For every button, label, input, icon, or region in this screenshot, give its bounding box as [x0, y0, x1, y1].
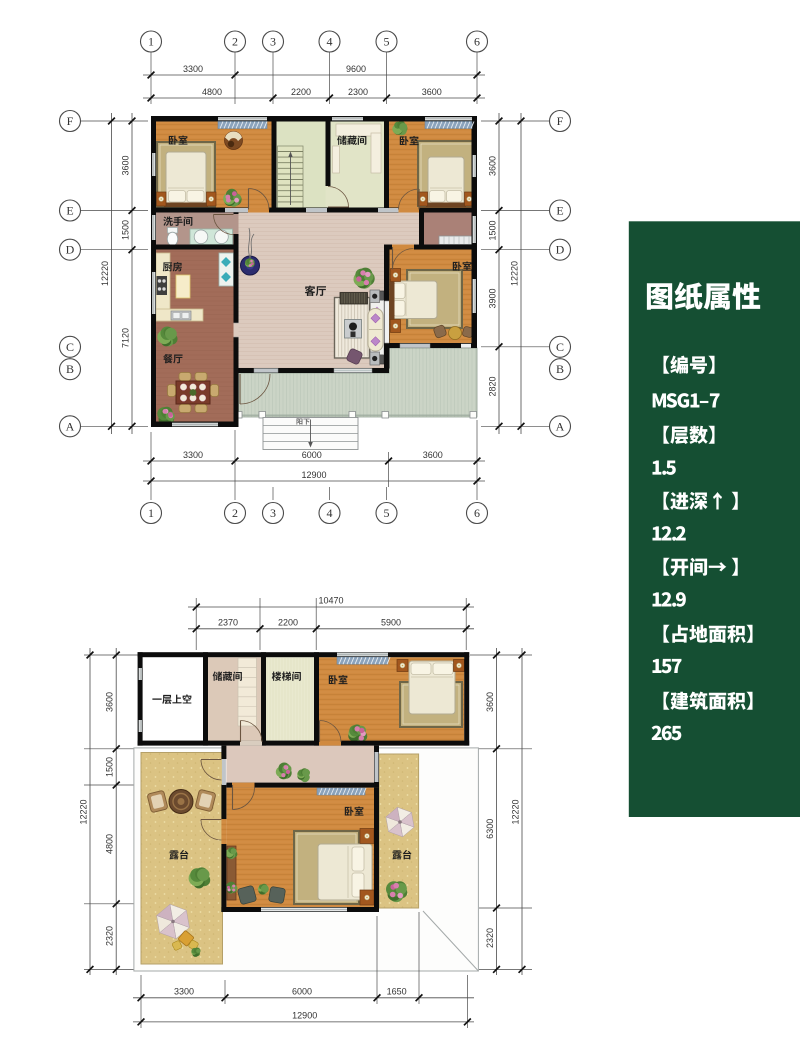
- svg-text:5900: 5900: [381, 618, 401, 628]
- svg-text:2200: 2200: [278, 618, 298, 628]
- svg-text:2320: 2320: [105, 926, 115, 946]
- svg-text:B: B: [556, 362, 564, 376]
- svg-text:3: 3: [270, 506, 276, 520]
- svg-text:1: 1: [148, 506, 154, 520]
- svg-text:2200: 2200: [291, 87, 311, 97]
- svg-text:1500: 1500: [121, 220, 131, 240]
- svg-text:3600: 3600: [423, 450, 443, 460]
- svg-text:12220: 12220: [79, 799, 89, 824]
- svg-text:12220: 12220: [511, 799, 521, 824]
- svg-text:A: A: [66, 419, 75, 433]
- svg-text:3600: 3600: [121, 155, 131, 175]
- svg-text:2: 2: [232, 35, 238, 49]
- svg-text:10470: 10470: [318, 596, 343, 606]
- svg-text:A: A: [556, 419, 565, 433]
- svg-text:2: 2: [232, 506, 238, 520]
- svg-text:4800: 4800: [202, 87, 222, 97]
- svg-text:1500: 1500: [105, 757, 115, 777]
- svg-text:C: C: [66, 340, 74, 354]
- svg-text:1500: 1500: [488, 220, 498, 240]
- svg-text:3600: 3600: [422, 87, 442, 97]
- svg-text:3600: 3600: [105, 692, 115, 712]
- svg-text:6000: 6000: [292, 987, 312, 997]
- svg-text:3300: 3300: [174, 987, 194, 997]
- svg-text:2300: 2300: [348, 87, 368, 97]
- svg-text:3: 3: [270, 35, 276, 49]
- svg-text:6: 6: [474, 35, 480, 49]
- svg-text:2820: 2820: [488, 376, 498, 396]
- svg-text:F: F: [557, 114, 564, 128]
- svg-text:12900: 12900: [292, 1011, 317, 1021]
- svg-text:1650: 1650: [387, 987, 407, 997]
- svg-text:3300: 3300: [183, 64, 203, 74]
- svg-text:5: 5: [384, 506, 390, 520]
- svg-text:4: 4: [327, 35, 333, 49]
- svg-text:3600: 3600: [488, 156, 498, 176]
- svg-text:2370: 2370: [218, 618, 238, 628]
- svg-text:2320: 2320: [485, 928, 495, 948]
- svg-text:B: B: [66, 362, 74, 376]
- svg-text:D: D: [66, 243, 75, 257]
- svg-text:1: 1: [148, 35, 154, 49]
- svg-text:3900: 3900: [488, 288, 498, 308]
- svg-text:6300: 6300: [485, 819, 495, 839]
- svg-text:12900: 12900: [301, 470, 326, 480]
- svg-text:4: 4: [327, 506, 333, 520]
- svg-text:7120: 7120: [121, 328, 131, 348]
- svg-text:5: 5: [384, 35, 390, 49]
- svg-text:C: C: [556, 340, 564, 354]
- svg-text:12220: 12220: [100, 261, 110, 286]
- svg-text:3600: 3600: [485, 692, 495, 712]
- svg-text:D: D: [556, 243, 565, 257]
- svg-text:4800: 4800: [105, 834, 115, 854]
- svg-text:9600: 9600: [346, 64, 366, 74]
- svg-text:12220: 12220: [510, 261, 520, 286]
- svg-text:6: 6: [474, 506, 480, 520]
- svg-text:3300: 3300: [183, 450, 203, 460]
- svg-text:E: E: [66, 204, 73, 218]
- svg-text:E: E: [556, 204, 563, 218]
- svg-text:6000: 6000: [302, 450, 322, 460]
- svg-text:F: F: [67, 114, 74, 128]
